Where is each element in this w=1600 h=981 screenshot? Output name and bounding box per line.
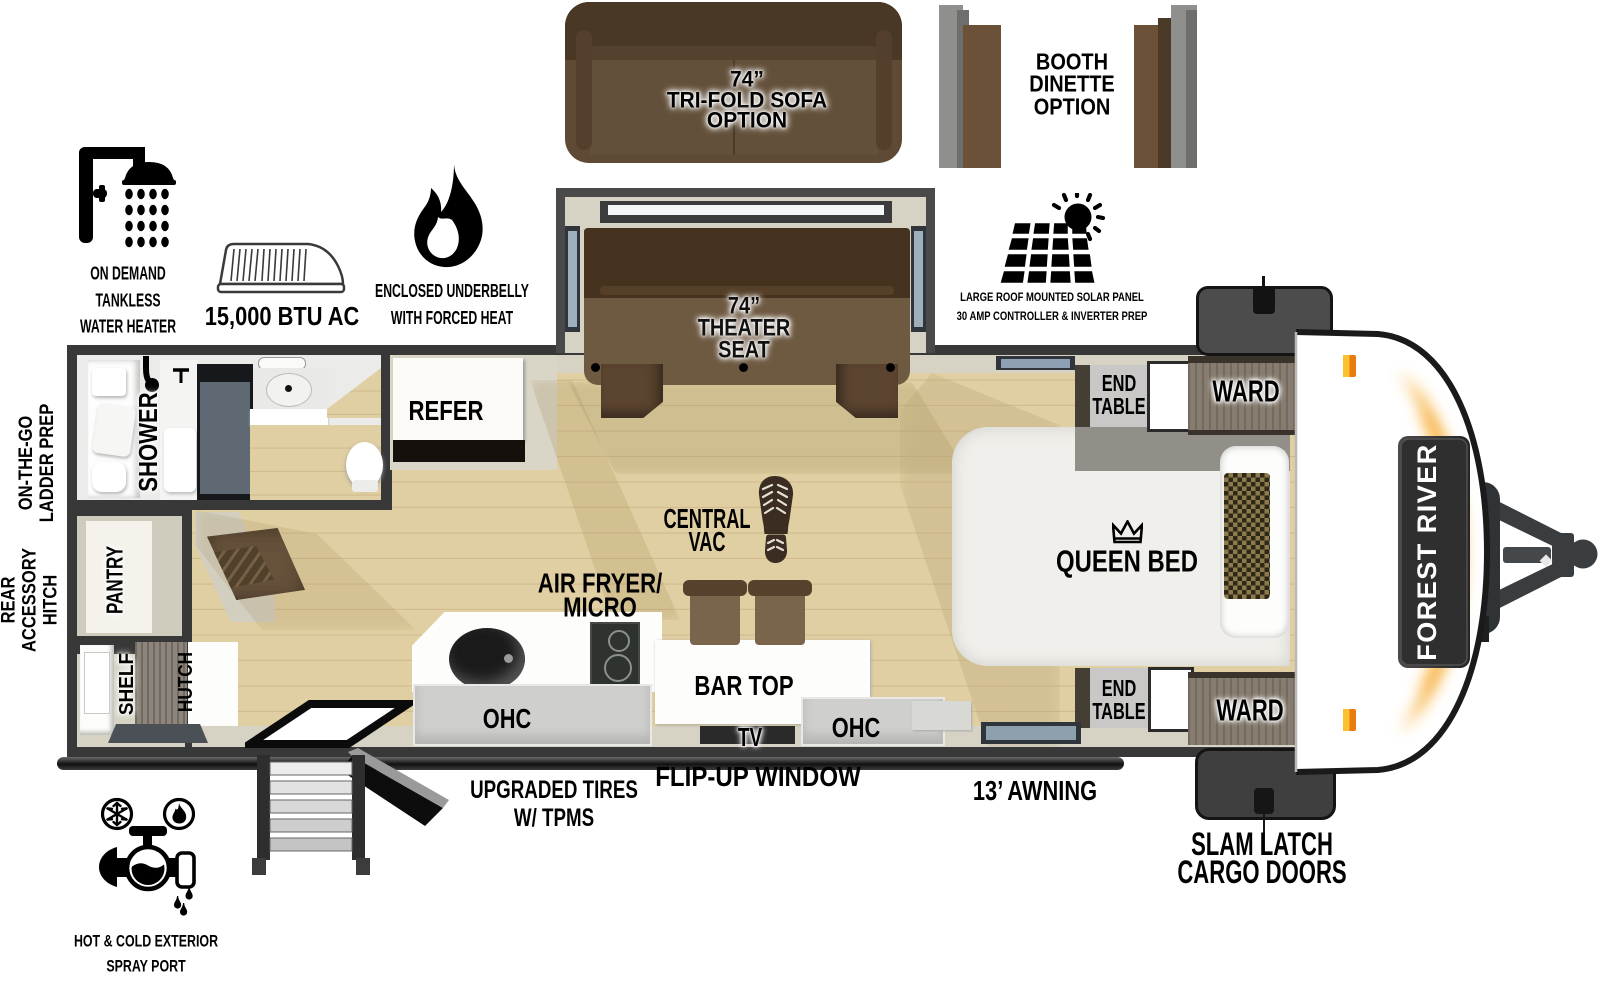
svg-text:FOREST RIVER: FOREST RIVER	[1412, 443, 1442, 661]
